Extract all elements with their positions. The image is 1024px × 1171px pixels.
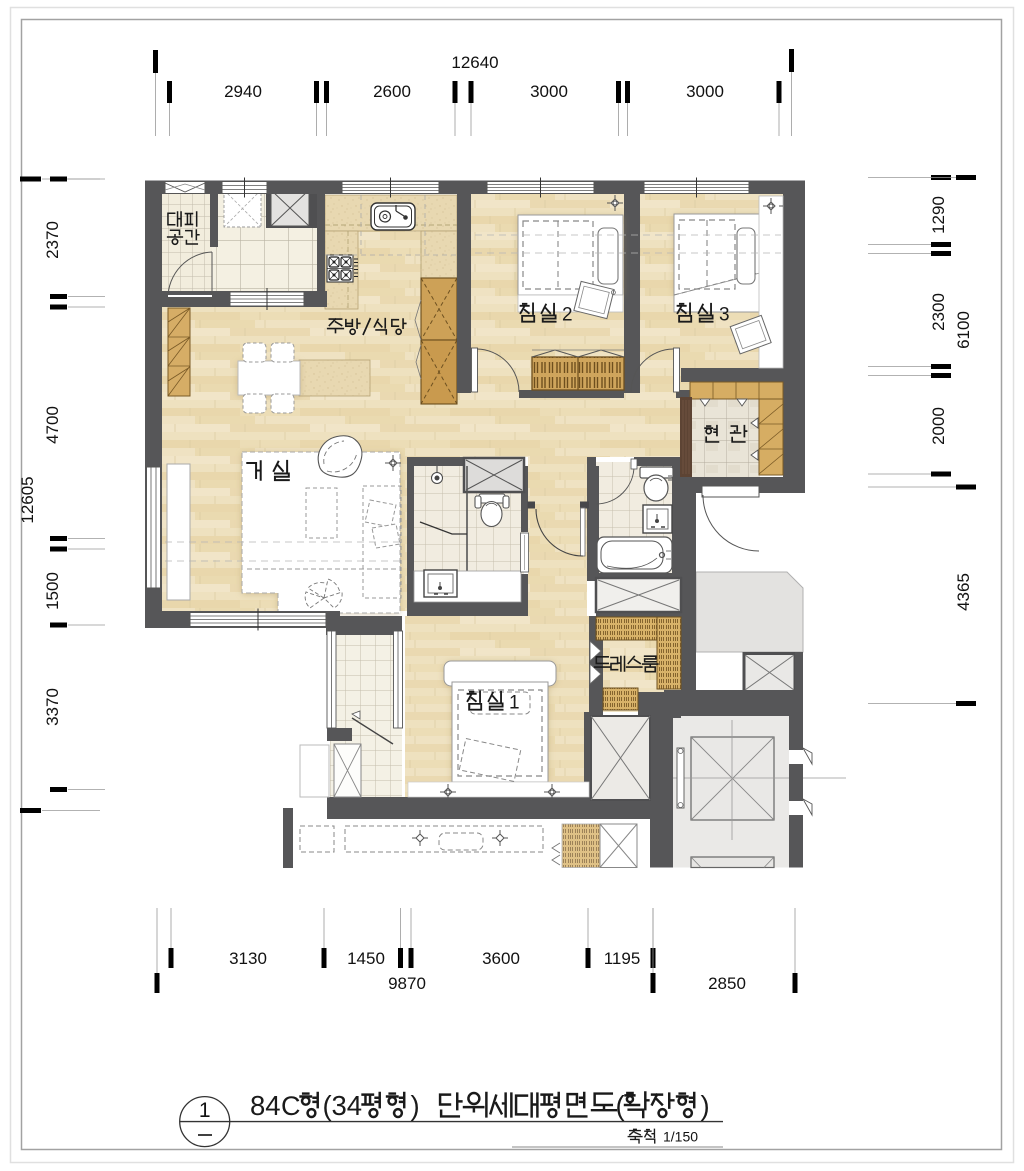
svg-text:C: C: [281, 1091, 301, 1121]
svg-text:2370: 2370: [43, 221, 62, 259]
svg-text:6100: 6100: [954, 311, 973, 349]
svg-text:12640: 12640: [451, 53, 498, 72]
svg-text:2000: 2000: [929, 407, 948, 445]
svg-text:3000: 3000: [686, 82, 724, 101]
svg-text:1500: 1500: [43, 572, 62, 610]
svg-text:3000: 3000: [530, 82, 568, 101]
svg-text:12605: 12605: [18, 476, 37, 523]
svg-text:9870: 9870: [388, 974, 426, 993]
svg-text:2: 2: [562, 305, 573, 326]
svg-text:3: 3: [719, 305, 730, 326]
svg-text:34: 34: [332, 1090, 363, 1121]
svg-text:3130: 3130: [229, 949, 267, 968]
svg-text:3600: 3600: [482, 949, 520, 968]
svg-text:): ): [411, 1090, 420, 1121]
svg-text:(: (: [616, 1090, 625, 1121]
svg-text:4700: 4700: [43, 406, 62, 444]
svg-text:1450: 1450: [347, 949, 385, 968]
svg-text:): ): [701, 1090, 710, 1121]
svg-text:1: 1: [509, 693, 520, 714]
svg-text:2600: 2600: [373, 82, 411, 101]
svg-text:84: 84: [250, 1090, 281, 1121]
svg-text:2300: 2300: [929, 293, 948, 331]
svg-text:1195: 1195: [604, 949, 641, 968]
svg-text:2940: 2940: [224, 82, 262, 101]
svg-text:1: 1: [199, 1099, 211, 1122]
svg-text:1/150: 1/150: [663, 1129, 698, 1145]
svg-text:2850: 2850: [708, 974, 746, 993]
svg-text:3370: 3370: [43, 688, 62, 726]
svg-text:(: (: [323, 1090, 332, 1121]
svg-text:1290: 1290: [929, 196, 948, 234]
svg-text:4365: 4365: [954, 573, 973, 611]
